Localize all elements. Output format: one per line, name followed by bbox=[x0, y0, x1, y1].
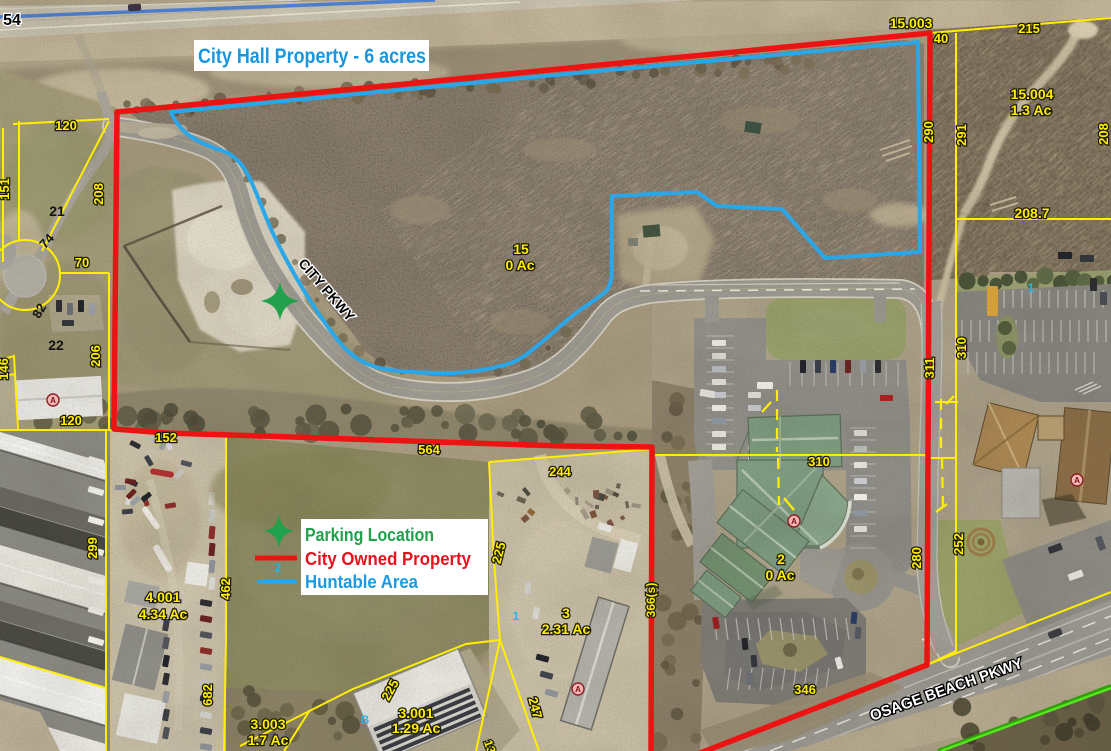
svg-text:280: 280 bbox=[909, 547, 924, 569]
svg-text:City Hall Property - 6 acres: City Hall Property - 6 acres bbox=[198, 45, 426, 68]
svg-text:3.003: 3.003 bbox=[250, 716, 285, 732]
svg-text:208: 208 bbox=[1096, 123, 1111, 145]
svg-text:15.004: 15.004 bbox=[1011, 86, 1054, 102]
svg-text:22: 22 bbox=[48, 337, 64, 353]
svg-text:15: 15 bbox=[513, 241, 529, 257]
svg-text:311: 311 bbox=[922, 358, 937, 379]
svg-text:4.001: 4.001 bbox=[145, 589, 180, 605]
svg-text:A: A bbox=[50, 396, 56, 405]
svg-text:0 Ac: 0 Ac bbox=[765, 567, 794, 583]
svg-text:1.7 Ac: 1.7 Ac bbox=[248, 732, 289, 748]
svg-text:21: 21 bbox=[49, 203, 65, 219]
svg-text:291: 291 bbox=[954, 124, 969, 146]
svg-text:299: 299 bbox=[85, 537, 100, 559]
svg-text:City Owned Property: City Owned Property bbox=[305, 549, 471, 569]
svg-text:146: 146 bbox=[0, 358, 11, 380]
svg-text:B: B bbox=[361, 713, 370, 727]
svg-text:208.7: 208.7 bbox=[1014, 205, 1049, 221]
svg-text:70: 70 bbox=[75, 255, 89, 270]
svg-text:1: 1 bbox=[513, 609, 520, 623]
svg-text:2: 2 bbox=[275, 561, 282, 575]
svg-text:54: 54 bbox=[3, 12, 21, 29]
svg-text:Parking Location: Parking Location bbox=[305, 525, 434, 545]
svg-text:206: 206 bbox=[88, 345, 103, 367]
svg-text:152: 152 bbox=[155, 430, 177, 445]
svg-text:208: 208 bbox=[91, 183, 106, 205]
svg-text:A: A bbox=[575, 685, 581, 694]
svg-text:151: 151 bbox=[0, 178, 12, 200]
svg-text:2.31 Ac: 2.31 Ac bbox=[542, 621, 591, 637]
svg-text:1.3 Ac: 1.3 Ac bbox=[1011, 102, 1052, 118]
svg-text:252: 252 bbox=[951, 533, 966, 555]
svg-text:1.29 Ac: 1.29 Ac bbox=[392, 720, 441, 736]
svg-text:A: A bbox=[791, 517, 797, 526]
svg-text:564: 564 bbox=[418, 442, 440, 457]
svg-text:682: 682 bbox=[200, 684, 215, 706]
svg-text:310: 310 bbox=[808, 454, 830, 469]
svg-text:15.003: 15.003 bbox=[890, 15, 933, 31]
svg-text:4.34 Ac: 4.34 Ac bbox=[139, 606, 188, 622]
svg-text:3.001: 3.001 bbox=[398, 705, 433, 721]
svg-text:40: 40 bbox=[934, 31, 948, 46]
svg-text:120: 120 bbox=[55, 118, 77, 133]
svg-text:120: 120 bbox=[60, 413, 82, 428]
svg-text:244: 244 bbox=[549, 464, 571, 479]
svg-text:290: 290 bbox=[921, 121, 936, 143]
svg-text:2: 2 bbox=[777, 551, 785, 567]
svg-text:462: 462 bbox=[218, 578, 233, 600]
svg-text:215: 215 bbox=[1018, 21, 1040, 36]
svg-text:346: 346 bbox=[794, 682, 816, 697]
svg-text:366(s): 366(s) bbox=[644, 583, 658, 618]
svg-text:310: 310 bbox=[954, 337, 969, 359]
svg-text:A: A bbox=[1074, 476, 1080, 485]
svg-text:3: 3 bbox=[562, 605, 570, 621]
svg-text:1: 1 bbox=[1028, 281, 1035, 295]
svg-text:Huntable Area: Huntable Area bbox=[305, 572, 419, 592]
svg-text:0 Ac: 0 Ac bbox=[505, 257, 534, 273]
